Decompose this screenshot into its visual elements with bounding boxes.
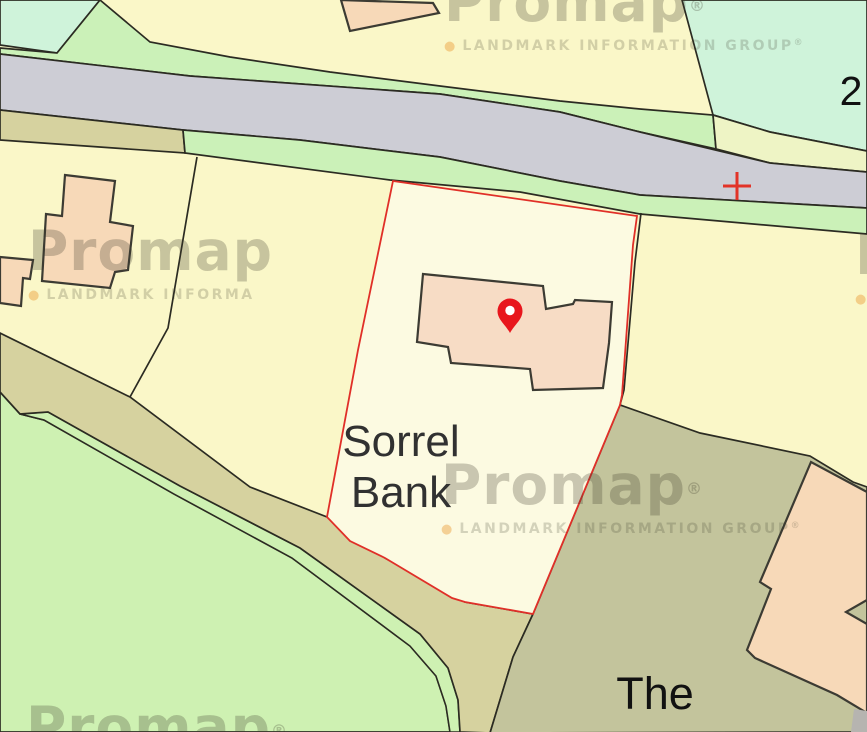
map-canvas	[0, 0, 867, 732]
map-viewport: Promap® ●LANDMARK INFORMATION GROUP® Pro…	[0, 0, 867, 732]
location-pin-hole	[505, 306, 514, 315]
